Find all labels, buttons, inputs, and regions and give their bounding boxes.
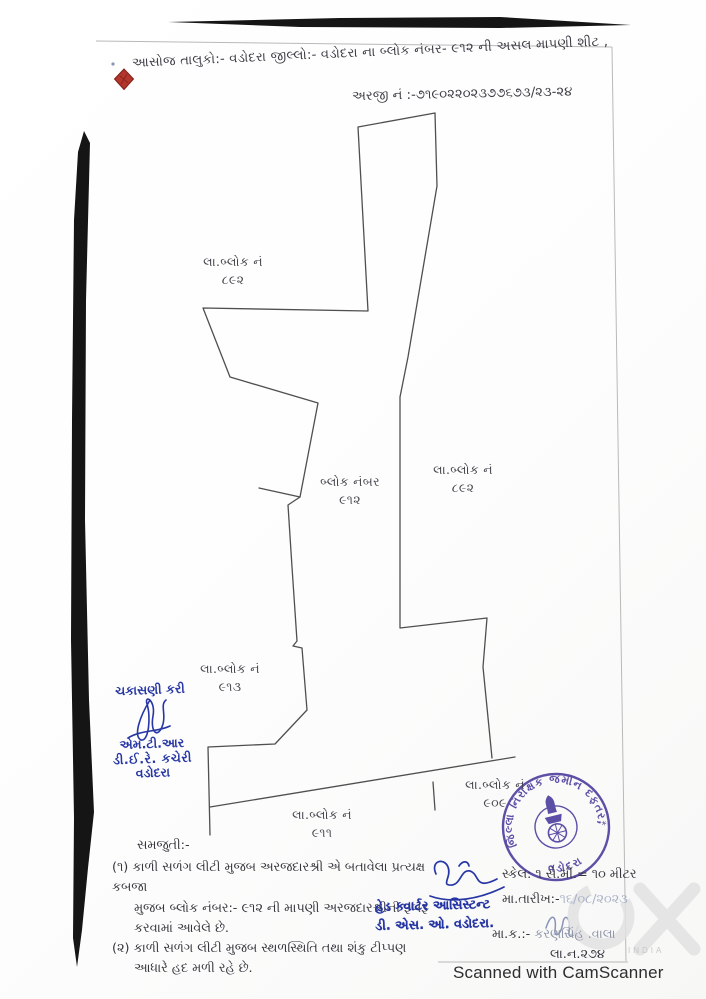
note-2-line-1: (૨) કાળી સળંગ લીટી મુજબ સ્થળસ્થિતિ તથા શ…: [112, 939, 442, 959]
note-1-line-1: (૧) કાળી સળંગ લીટી મુજબ અરજદારશ્રી એ બતા…: [112, 858, 442, 898]
surveyor-name: કરણસિંહ .વાલા: [530, 927, 615, 942]
sheet-title: આસોજ તાલુકો:- વડોદરા જીલ્લો:- વડોદરા ના …: [132, 35, 602, 71]
scanned-survey-sheet: જિલ્લા નિરીક્ષક જમીન દફતર, વડોદરા * આસોજ…: [0, 0, 706, 999]
round-stamp-star: *: [601, 820, 609, 832]
map-label-block-912: બ્લોક નંબર ૯૧૨: [300, 473, 400, 508]
notes-heading: સમજુતી:-: [137, 836, 442, 856]
surveyor-line: મા.ક.:- કરણસિંહ .વાલા: [492, 928, 616, 942]
measurement-date: મા.તારીખ:-૧૬/૦૮/૨૦૨૩: [502, 893, 628, 907]
register-number: લા.ન.૨૭૪: [550, 948, 605, 962]
map-label-block-892-top: લા.બ્લોક નં ૮૯૨: [183, 253, 283, 288]
measurement-date-value: ૧૬/૦૮/૨૦૨૩: [560, 892, 628, 907]
scale-note: સ્કેલ: ૧ સે.મી.= ૧૦ મીટર: [502, 868, 637, 882]
map-label-block-909: લા.બ્લોક નં ૯૦૯: [445, 776, 545, 811]
watermark-india-label: INDIA: [628, 946, 664, 955]
note-2-line-2: આધારે હદ મળી રહે છે.: [134, 959, 442, 979]
camscanner-footer-label: Scanned with CamScanner: [453, 963, 703, 983]
application-number: અરજી નં :-૭૧૯૦૨૨૦૨૩૭૭૬૭૩/૨૩-૨૪: [352, 83, 652, 104]
red-seal-icon: [111, 62, 133, 89]
verification-line-1: ચકાસણી કરી: [102, 681, 197, 699]
map-label-block-892-right: લા.બ્લોક નં ૮૯૨: [413, 461, 513, 496]
verification-note: ચકાસણી કરી એમ.ટી.આર ડી.ઈ.રે. કચેરી વડોદર…: [102, 681, 200, 782]
